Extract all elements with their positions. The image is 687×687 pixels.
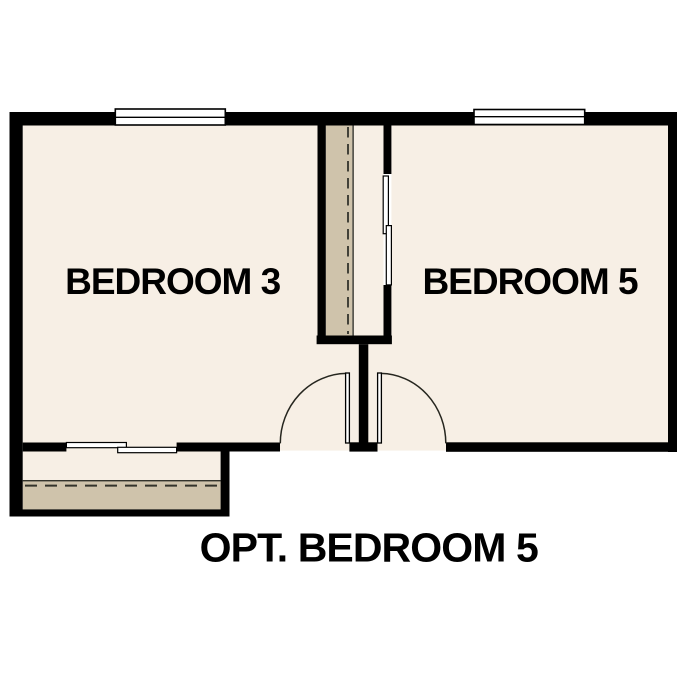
- svg-text:BEDROOM 5: BEDROOM 5: [422, 261, 638, 302]
- svg-text:BEDROOM 3: BEDROOM 3: [65, 261, 281, 302]
- svg-text:OPT. BEDROOM 5: OPT. BEDROOM 5: [200, 524, 538, 570]
